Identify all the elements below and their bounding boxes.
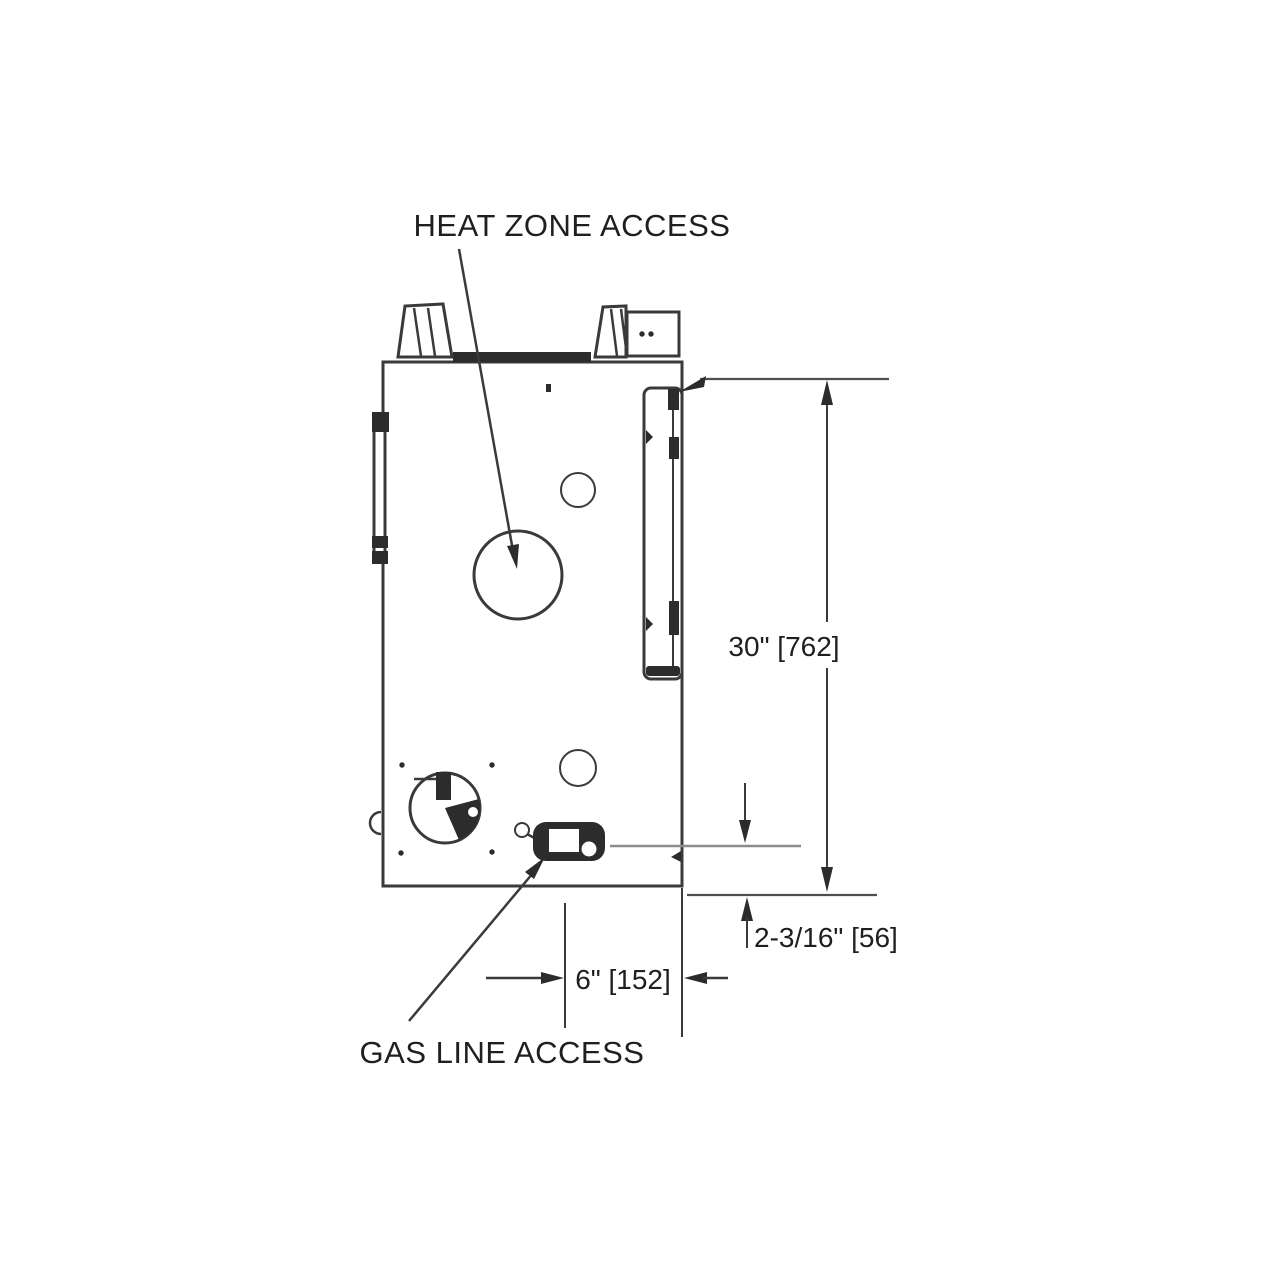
gas-line-access-label: GAS LINE ACCESS bbox=[360, 1035, 645, 1070]
screw-dot-2 bbox=[489, 762, 494, 767]
bottom-offset-dimension-text: 2-3/16" [56] bbox=[754, 922, 898, 953]
left-rail-tab-top bbox=[372, 412, 389, 432]
right-rail-clip-top bbox=[668, 389, 679, 410]
knockout-bar bbox=[436, 772, 451, 800]
gas-valve-window bbox=[549, 829, 579, 852]
plate-screw-dot-1 bbox=[639, 331, 644, 336]
right-rail-clip-lower bbox=[669, 601, 679, 635]
screw-dot-1 bbox=[399, 762, 404, 767]
left-rail-tab-bottom-2 bbox=[372, 551, 388, 564]
right-rail-bottom-cap bbox=[646, 666, 680, 676]
dimension-gas-offset: 6" [152] bbox=[486, 888, 728, 1037]
gas-line-leader-line bbox=[409, 873, 533, 1021]
top-edge-tick bbox=[546, 384, 551, 392]
offset-arrow-down bbox=[739, 820, 751, 843]
appliance-dimension-diagram: 30" [762] 2-3/16" [56] 6" [152] HEAT ZON… bbox=[0, 0, 1280, 1280]
electrical-knockout bbox=[410, 772, 480, 843]
gas-offset-dimension-text: 6" [152] bbox=[575, 964, 671, 995]
screw-dot-3 bbox=[398, 850, 403, 855]
knockout-white-hole bbox=[468, 807, 478, 817]
height-arrow-down bbox=[821, 867, 833, 892]
left-edge-grommet bbox=[370, 812, 381, 834]
height-dimension-text: 30" [762] bbox=[728, 631, 839, 662]
height-arrow-up bbox=[821, 380, 833, 405]
gas-offset-arrow-right bbox=[541, 972, 564, 984]
screw-dot-4 bbox=[489, 849, 494, 854]
top-gasket-band bbox=[453, 352, 591, 362]
gas-valve-port bbox=[582, 842, 597, 857]
heat-zone-access-label: HEAT ZONE ACCESS bbox=[414, 208, 731, 243]
right-channel-rail bbox=[644, 388, 682, 679]
plate-screw-dot-2 bbox=[648, 331, 653, 336]
technical-drawing-canvas: 30" [762] 2-3/16" [56] 6" [152] HEAT ZON… bbox=[0, 0, 1280, 1280]
right-rail-clip-upper bbox=[669, 437, 679, 459]
left-standoff-bracket bbox=[398, 304, 452, 357]
appliance-body bbox=[370, 304, 682, 886]
dimension-height: 30" [762] bbox=[679, 376, 889, 895]
left-rail-tab-bottom-1 bbox=[372, 536, 388, 548]
